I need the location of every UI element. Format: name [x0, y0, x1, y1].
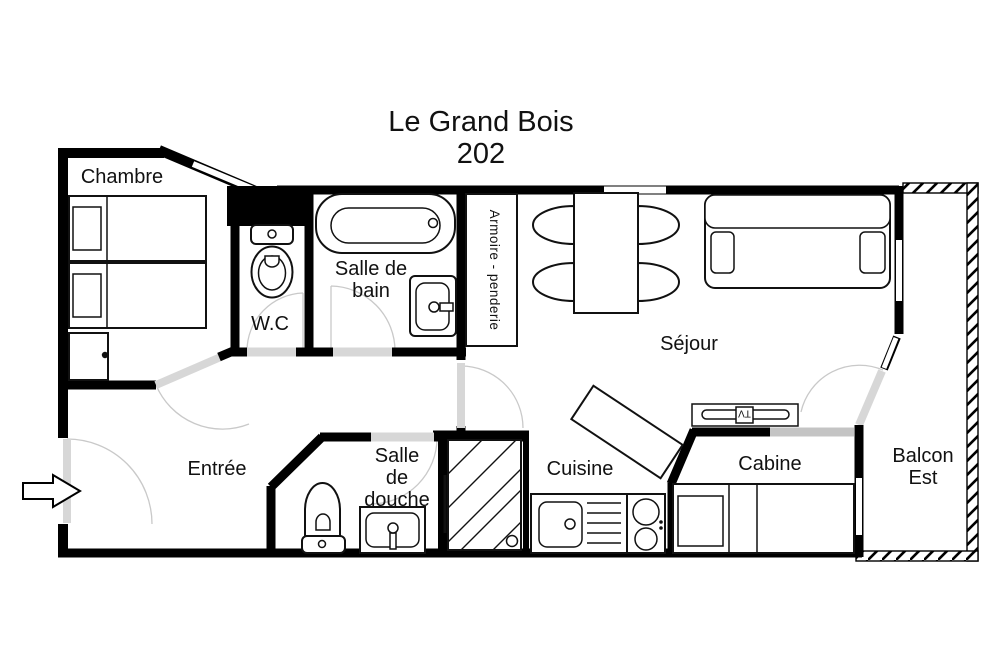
tv-label: TV: [738, 408, 751, 419]
label-salle-de-bain-2: bain: [352, 280, 390, 302]
floor-plan: TV Le Grand Bois: [0, 0, 1000, 667]
shower-drain: [507, 536, 518, 547]
stove-knob-1: [659, 520, 663, 524]
toilet-button: [268, 230, 276, 238]
douche-toilet-button: [319, 541, 326, 548]
label-balcon-1: Balcon: [892, 445, 953, 467]
plan-title: Le Grand Bois: [388, 106, 573, 138]
label-cabine: Cabine: [738, 453, 801, 475]
bathtub-drain: [429, 219, 438, 228]
balcony-wall-right: [967, 183, 978, 561]
wall-block-wc: [227, 186, 313, 226]
bed-1-pillow: [73, 207, 101, 250]
sofa-backrest: [705, 195, 890, 228]
nightstand-knob: [102, 352, 108, 358]
douche-washbasin-tap: [388, 523, 398, 533]
cabin-furniture: [673, 484, 854, 553]
wc-toilet: [251, 225, 293, 298]
nightstand: [69, 333, 108, 380]
floor-plan-svg: TV Le Grand Bois: [0, 0, 1000, 667]
label-salle-de-douche-2: de: [386, 467, 408, 489]
bathtub-inner: [331, 208, 440, 243]
label-cuisine: Cuisine: [547, 458, 614, 480]
bed-2-pillow: [73, 274, 101, 317]
label-chambre: Chambre: [81, 166, 163, 188]
douche-toilet-inner: [316, 514, 330, 530]
label-armoire-penderie: Armoire - penderie: [487, 210, 502, 331]
label-balcon-2: Est: [909, 467, 938, 489]
bath-washbasin-tap: [429, 302, 439, 312]
bath-washbasin-tap-handle: [440, 303, 453, 311]
label-sejour: Séjour: [660, 333, 718, 355]
plan-unit-number: 202: [457, 138, 505, 170]
label-wc: W.C: [251, 313, 289, 335]
label-entree: Entrée: [188, 458, 247, 480]
balcony-wall-bottom: [856, 551, 978, 561]
douche-washbasin-stem: [390, 533, 396, 549]
label-salle-de-douche-3: douche: [364, 489, 430, 511]
stove-burner-1: [633, 499, 659, 525]
label-salle-de-bain-1: Salle de: [335, 258, 407, 280]
label-salle-de-douche-1: Salle: [375, 445, 419, 467]
stove-knob-2: [659, 526, 663, 530]
sofa-armrest-left: [711, 232, 734, 273]
toilet-flush: [265, 256, 279, 267]
sofa-armrest-right: [860, 232, 885, 273]
kitchen-tap: [565, 519, 575, 529]
dining-table: [574, 193, 638, 313]
stove-burner-2: [635, 528, 657, 550]
cabin-bed-pillow: [678, 496, 723, 546]
